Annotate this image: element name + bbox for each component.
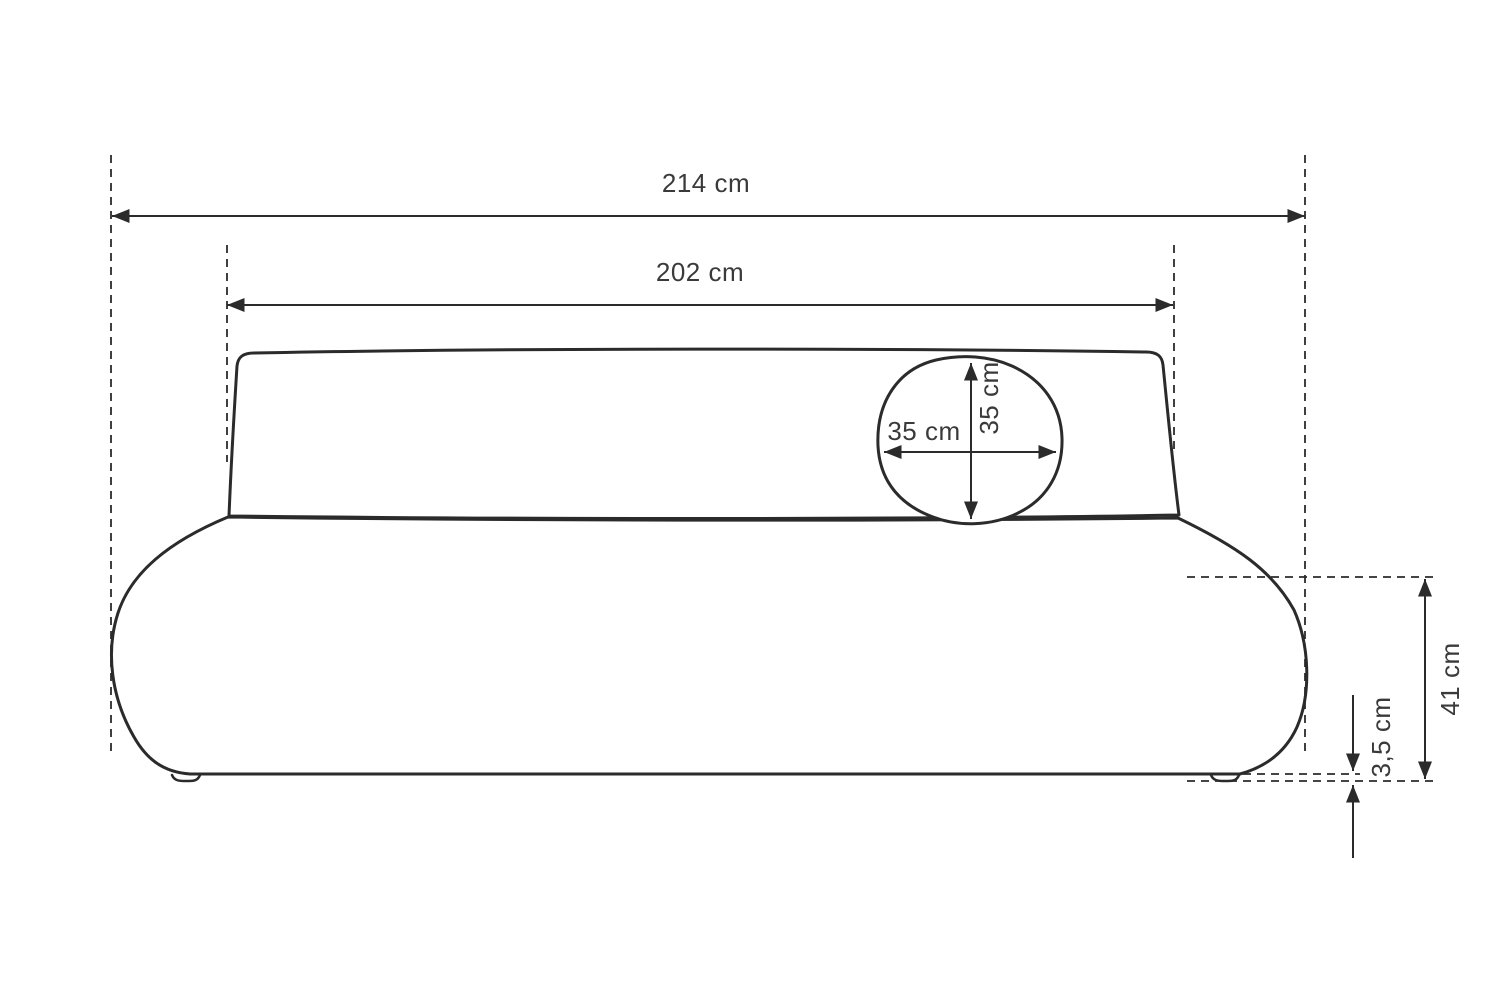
dimension-diagram-page: 214 cm 202 cm 35 cm 35 cm 41 cm 3,5 cm (0, 0, 1500, 1000)
dim-label-pillow-height: 35 cm (974, 361, 1004, 434)
dim-label-foot-height: 3,5 cm (1366, 696, 1396, 777)
dim-label-backrest-width: 202 cm (656, 257, 744, 287)
dim-label-overall-width: 214 cm (662, 168, 750, 198)
dim-label-seat-height: 41 cm (1435, 642, 1465, 715)
sofa-base-outline (111, 517, 1306, 774)
sofa-dimension-diagram: 214 cm 202 cm 35 cm 35 cm 41 cm 3,5 cm (0, 0, 1500, 1000)
sofa-foot-left (172, 775, 200, 781)
dim-label-pillow-width: 35 cm (887, 416, 960, 446)
